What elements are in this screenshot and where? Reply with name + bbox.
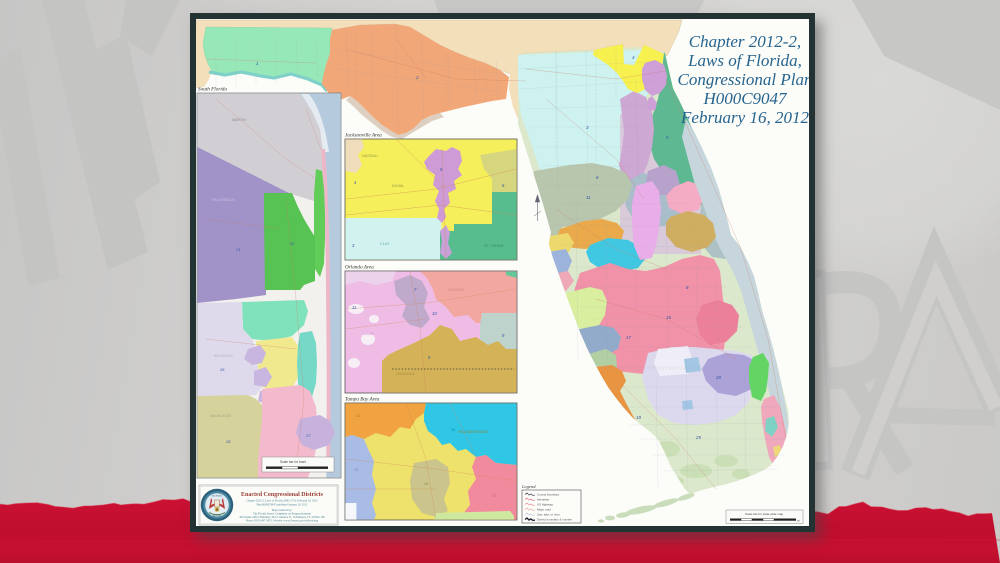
svg-text:MARTIN: MARTIN bbox=[232, 118, 246, 122]
svg-text:19: 19 bbox=[636, 415, 642, 420]
svg-text:2: 2 bbox=[415, 75, 419, 80]
svg-text:PALM BEACH: PALM BEACH bbox=[212, 198, 235, 202]
svg-text:MIAMI-DADE: MIAMI-DADE bbox=[210, 414, 232, 418]
svg-text:County boundary: County boundary bbox=[537, 493, 560, 497]
svg-text:26: 26 bbox=[219, 367, 225, 372]
svg-text:Interstate: Interstate bbox=[537, 498, 549, 502]
svg-text:22: 22 bbox=[289, 241, 295, 246]
svg-text:US Highway: US Highway bbox=[537, 503, 553, 507]
svg-text:16: 16 bbox=[666, 315, 672, 320]
svg-text:Legend: Legend bbox=[521, 484, 536, 489]
svg-text:25: 25 bbox=[225, 439, 231, 444]
svg-text:15: 15 bbox=[451, 428, 455, 432]
svg-text:Chapter 2012-2, Laws of Florid: Chapter 2012-2, Laws of Florida (HB 1175… bbox=[246, 500, 318, 503]
svg-text:11: 11 bbox=[586, 195, 591, 200]
svg-text:20: 20 bbox=[715, 375, 722, 380]
svg-text:21: 21 bbox=[235, 247, 240, 252]
svg-text:11: 11 bbox=[352, 305, 356, 310]
svg-text:Tampa Bay Area: Tampa Bay Area bbox=[345, 397, 380, 403]
svg-text:ST. JOHNS: ST. JOHNS bbox=[484, 244, 504, 248]
svg-text:Jacksonville Area: Jacksonville Area bbox=[345, 133, 382, 139]
svg-text:Major road: Major road bbox=[537, 508, 551, 512]
svg-text:Sea, lake, or river: Sea, lake, or river bbox=[537, 513, 560, 517]
svg-text:Scale bar for inset: Scale bar for inset bbox=[280, 460, 306, 464]
svg-text:NASSAU: NASSAU bbox=[362, 154, 378, 158]
svg-text:Congressional Plan: Congressional Plan bbox=[678, 70, 809, 89]
svg-text:LAKE: LAKE bbox=[364, 332, 374, 336]
svg-text:Plan H000C9047 published Janua: Plan H000C9047 published January 19, 201… bbox=[257, 504, 308, 507]
svg-text:Laws of Florida,: Laws of Florida, bbox=[687, 51, 802, 70]
svg-text:BROWARD: BROWARD bbox=[214, 354, 233, 358]
svg-text:13: 13 bbox=[354, 468, 358, 472]
svg-text:Orlando Area: Orlando Area bbox=[345, 265, 374, 271]
svg-text:DUVAL: DUVAL bbox=[392, 184, 404, 188]
svg-text:OSCEOLA: OSCEOLA bbox=[396, 372, 415, 376]
svg-text:27: 27 bbox=[305, 433, 311, 438]
svg-text:Enacted Congressional District: Enacted Congressional Districts bbox=[241, 492, 324, 498]
svg-text:Scale bar for state-wide map: Scale bar for state-wide map bbox=[745, 512, 784, 516]
svg-text:14: 14 bbox=[424, 482, 428, 486]
svg-text:CLAY: CLAY bbox=[380, 242, 390, 246]
svg-text:ORANGE: ORANGE bbox=[448, 288, 465, 292]
svg-text:Phone: (850) 487-5855, Website: Phone: (850) 487-5855, Website: www.flse… bbox=[246, 520, 319, 523]
svg-text:South Florida: South Florida bbox=[198, 87, 227, 93]
svg-text:District boundary & number: District boundary & number bbox=[537, 518, 572, 522]
svg-text:10: 10 bbox=[432, 311, 437, 316]
svg-text:25: 25 bbox=[695, 435, 702, 440]
svg-text:H000C9047: H000C9047 bbox=[702, 89, 788, 108]
svg-text:mi: mi bbox=[797, 519, 800, 523]
svg-text:17: 17 bbox=[492, 494, 496, 498]
svg-text:17: 17 bbox=[626, 335, 632, 340]
svg-text:Chapter 2012-2,: Chapter 2012-2, bbox=[689, 32, 801, 51]
svg-text:HILLSBOROUGH: HILLSBOROUGH bbox=[458, 430, 488, 434]
svg-text:February 16, 2012: February 16, 2012 bbox=[680, 108, 809, 127]
svg-text:12: 12 bbox=[356, 414, 360, 418]
